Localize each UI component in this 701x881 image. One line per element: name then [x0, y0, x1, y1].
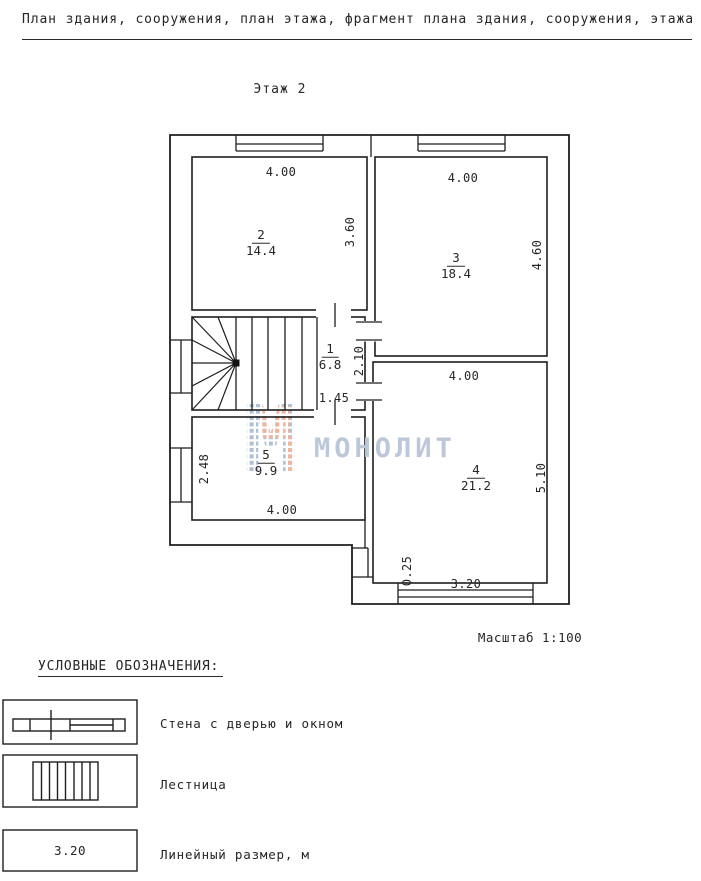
- window-left-lower: [170, 448, 192, 502]
- window-top-right: [418, 135, 505, 151]
- floor-label: Этаж 2: [230, 82, 330, 97]
- dimension-label: 4.00: [449, 369, 480, 383]
- room-label: 421.2: [461, 463, 491, 494]
- room-label: 16.8: [319, 342, 342, 373]
- room-area: 18.4: [441, 267, 471, 282]
- room-area: 14.4: [246, 244, 276, 259]
- room-number: 1: [321, 342, 339, 358]
- room-area: 21.2: [461, 479, 491, 494]
- window-left-upper: [170, 340, 192, 393]
- dimension-label: 4.00: [266, 165, 297, 179]
- dimension-label: 1.45: [319, 391, 350, 405]
- room-area: 9.9: [255, 464, 278, 479]
- dimension-label: 3.20: [451, 577, 482, 591]
- dimension-label: 0.25: [400, 556, 414, 587]
- wall-door-window-symbol: [3, 700, 137, 744]
- dimension-label: 4.00: [267, 503, 298, 517]
- dimension-label: 5.10: [534, 463, 548, 494]
- legend-heading: УСЛОВНЫЕ ОБОЗНАЧЕНИЯ:: [38, 659, 223, 677]
- scale-label: Масштаб 1:100: [470, 630, 590, 645]
- room-number: 4: [467, 463, 485, 479]
- dimension-label: 2.10: [352, 346, 366, 377]
- monolit-watermark-text: МОНОЛИТ: [314, 433, 456, 464]
- room-number: 3: [447, 251, 465, 267]
- stair-hub-marker: [233, 360, 240, 367]
- room-number: 2: [252, 228, 270, 244]
- floor-plan-page: М М: [0, 0, 701, 881]
- room-label: 318.4: [441, 251, 471, 282]
- room-2-boundary: [192, 157, 367, 310]
- dimension-label: 4.60: [530, 240, 544, 271]
- winder-treads: [192, 317, 236, 410]
- window-top-left: [236, 135, 323, 151]
- linear-dimension-sample: 3.20: [3, 830, 137, 871]
- room-label: 214.4: [246, 228, 276, 259]
- legend-item-staircase: Лестница: [160, 777, 227, 792]
- page-title: План здания, сооружения, план этажа, фра…: [22, 12, 692, 40]
- room-area: 6.8: [319, 358, 342, 373]
- legend-item-wall-door-window: Стена с дверью и окном: [160, 716, 343, 731]
- dimension-label: 3.60: [343, 217, 357, 248]
- wall-step-block: [352, 520, 373, 577]
- dimension-label: 2.48: [197, 454, 211, 485]
- dimension-label: 4.00: [448, 171, 479, 185]
- legend-item-linear-dimension: Линейный размер, м: [160, 847, 310, 862]
- room-number: 5: [257, 448, 275, 464]
- room-label: 59.9: [255, 448, 278, 479]
- staircase-symbol: [3, 755, 137, 807]
